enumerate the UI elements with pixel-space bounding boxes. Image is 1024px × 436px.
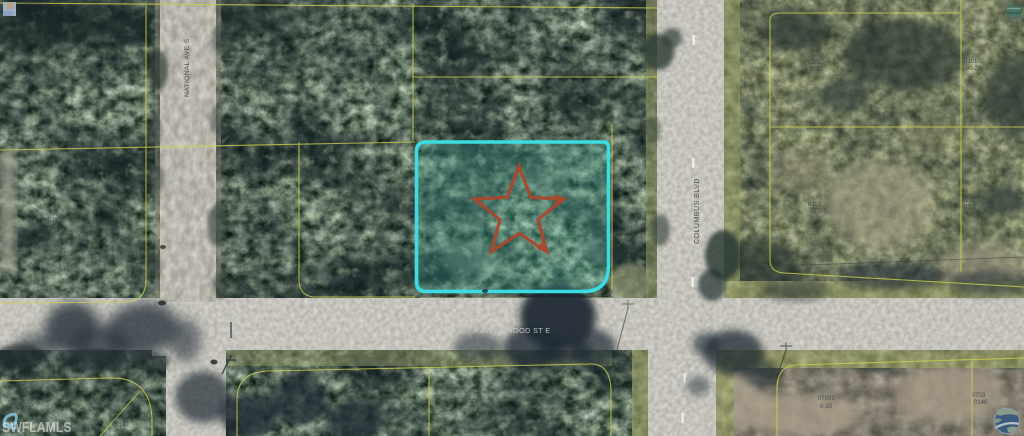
- svg-text:0101: 0101: [962, 198, 976, 204]
- svg-text:02 0: 02 0: [810, 209, 822, 215]
- svg-text:02/03: 02/03: [258, 67, 274, 73]
- svg-text:RAVENSWOOD ST E: RAVENSWOOD ST E: [474, 326, 551, 335]
- svg-text:00 40: 00 40: [468, 406, 484, 412]
- svg-text:020/A: 020/A: [18, 403, 34, 409]
- svg-text:0 0 0 0: 0 0 0 0: [58, 9, 77, 15]
- svg-text:00000: 00000: [20, 410, 37, 416]
- svg-text:0101: 0101: [808, 60, 822, 66]
- svg-text:00: 00: [116, 429, 123, 435]
- svg-text:00 A: 00 A: [264, 224, 276, 230]
- svg-text:0140: 0140: [974, 400, 988, 406]
- svg-text:00 0 S: 00 0 S: [262, 217, 279, 223]
- svg-text:0050: 0050: [277, 407, 291, 413]
- svg-text:02/03: 02/03: [48, 218, 64, 224]
- svg-text:02/03: 02/03: [26, 73, 42, 79]
- svg-text:0703: 0703: [972, 393, 986, 399]
- svg-text:0020: 0020: [810, 67, 824, 73]
- svg-text:0001 0: 0001 0: [465, 399, 484, 405]
- svg-text:0101: 0101: [964, 59, 978, 65]
- svg-text:00 0: 00 0: [260, 74, 272, 80]
- svg-text:07059: 07059: [818, 396, 835, 402]
- svg-text:COLUMBUS BLVD: COLUMBUS BLVD: [694, 178, 701, 244]
- svg-text:0-10: 0-10: [820, 404, 833, 410]
- svg-text:NATIONAL AVE S: NATIONAL AVE S: [184, 38, 191, 97]
- svg-text:02/03: 02/03: [450, 65, 466, 71]
- svg-text:00 A: 00 A: [50, 225, 62, 231]
- svg-text:0101: 0101: [808, 202, 822, 208]
- svg-text:02/03: 02/03: [429, 210, 445, 216]
- svg-text:00 0: 00 0: [28, 80, 40, 86]
- svg-text:02/03 1 1: 02/03 1 1: [24, 1, 50, 7]
- svg-text:02 0: 02 0: [964, 205, 976, 211]
- svg-text:00 20: 00 20: [966, 66, 982, 72]
- svg-text:SWFLAMLS: SWFLAMLS: [2, 419, 72, 435]
- svg-text:00 10: 00 10: [431, 217, 447, 223]
- svg-text:000 50: 000 50: [274, 400, 293, 406]
